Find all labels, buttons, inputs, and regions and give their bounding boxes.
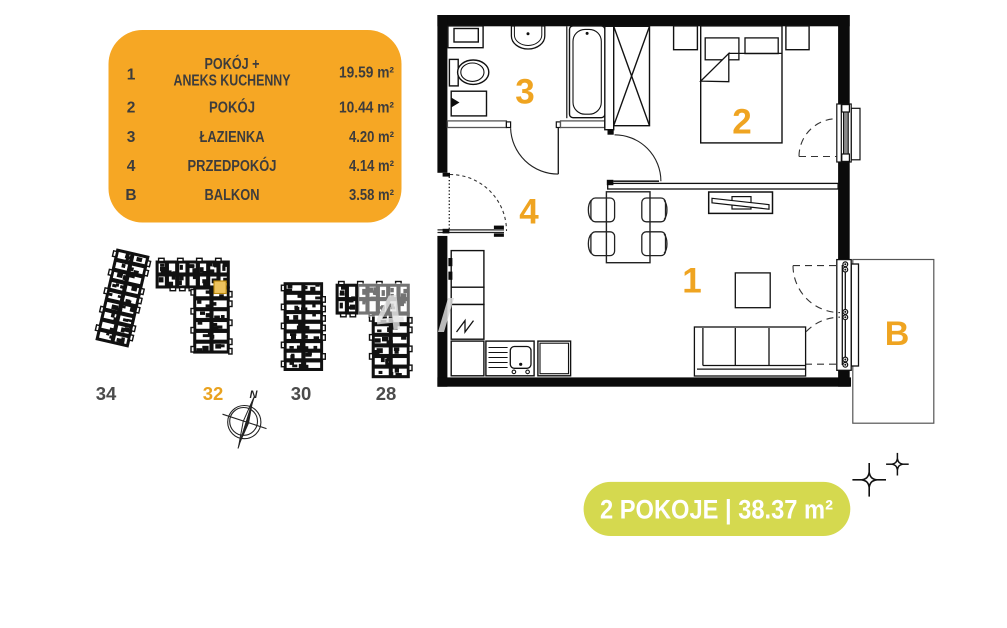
svg-text:PRZEDPOKÓJ: PRZEDPOKÓJ	[188, 157, 277, 175]
svg-text:3.58 m²: 3.58 m²	[349, 187, 394, 204]
svg-text:1: 1	[682, 262, 701, 301]
svg-text:4.20 m²: 4.20 m²	[349, 129, 394, 146]
svg-text:1: 1	[127, 67, 136, 84]
svg-text:3: 3	[127, 129, 136, 146]
svg-text:4.14 m²: 4.14 m²	[349, 158, 394, 175]
svg-text:2 POKOJE | 38.37 m²: 2 POKOJE | 38.37 m²	[600, 495, 833, 525]
svg-text:30: 30	[291, 383, 312, 404]
svg-text:B: B	[125, 187, 136, 204]
svg-text:34: 34	[96, 383, 117, 404]
svg-text:3: 3	[515, 73, 534, 112]
svg-text:POKÓJ +: POKÓJ +	[205, 55, 260, 73]
svg-text:4: 4	[519, 193, 539, 232]
svg-text:4: 4	[127, 158, 136, 175]
svg-text:N: N	[250, 389, 259, 401]
svg-text:B: B	[885, 315, 910, 353]
svg-text:POKÓJ: POKÓJ	[209, 98, 255, 116]
svg-text:2: 2	[127, 99, 136, 116]
svg-text:ANEKS KUCHENNY: ANEKS KUCHENNY	[174, 73, 292, 90]
svg-text:19.59 m²: 19.59 m²	[339, 65, 394, 82]
svg-text:28: 28	[376, 383, 397, 404]
svg-text:BALKON: BALKON	[205, 187, 260, 204]
svg-text:32: 32	[203, 383, 224, 404]
svg-text:2: 2	[732, 103, 751, 142]
svg-text:ŁAZIENKA: ŁAZIENKA	[200, 129, 265, 146]
svg-text:10.44 m²: 10.44 m²	[339, 99, 394, 116]
